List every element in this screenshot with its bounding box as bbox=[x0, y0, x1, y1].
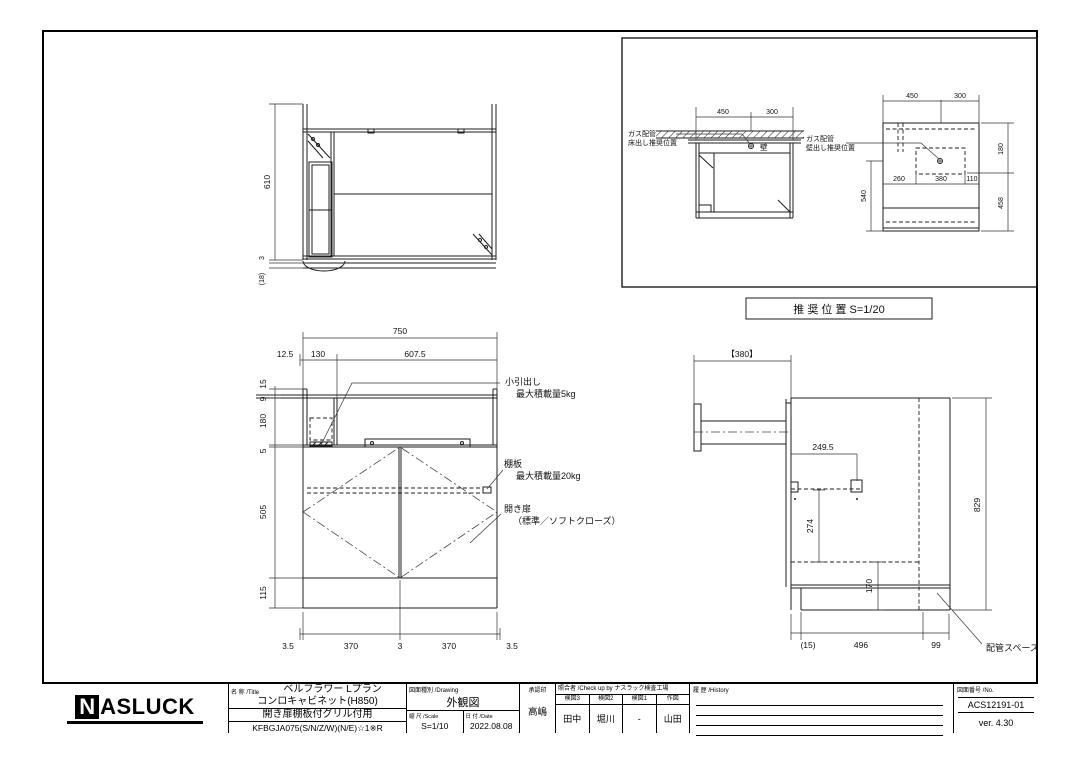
drawing-number-label: 図面番号 /No. bbox=[957, 685, 994, 694]
dim-front-9: 9 bbox=[258, 396, 268, 401]
caption-text: 推 奨 位 置 S=1/20 bbox=[793, 302, 884, 316]
title-block-check-cell: 照合者 /Check up by ナスラック検査工場 検図3 検図2 検図1 作… bbox=[555, 684, 689, 733]
title-block-drawing-cell: 図面種別 /Drawing 外観図 縮 尺 /Scale S=1/10 日 付 … bbox=[406, 684, 519, 733]
history-ruled-lines bbox=[696, 696, 943, 736]
side-view: 【380】 249.5 274 170 829 (15) 496 99 配管スペ… bbox=[694, 349, 1039, 653]
title-block-name-cell: 名 称 /Title ベルフラワー Lプラン コンロキャビネット(H850) 開… bbox=[228, 684, 406, 733]
label-shelf: 棚板 bbox=[504, 458, 522, 469]
dim-front-12-5: 12.5 bbox=[277, 349, 294, 359]
dim-side-380: 【380】 bbox=[726, 349, 757, 359]
check-col-label-1: 検図3 bbox=[556, 695, 589, 705]
label-hinged-door-type: （標準／ソフトクローズ） bbox=[513, 515, 621, 526]
date-label: 日 付 /Date bbox=[466, 712, 493, 720]
dim-front-607-5: 607.5 bbox=[404, 349, 426, 359]
dim-front-180: 180 bbox=[258, 414, 268, 428]
label-small-drawer: 小引出し bbox=[505, 376, 541, 387]
title-block-history-cell: 履 歴 /History bbox=[689, 684, 953, 733]
title-block: NASLUCK 名 称 /Title ベルフラワー Lプラン コンロキャビネット… bbox=[42, 682, 1038, 733]
dim-wall-380: 380 bbox=[935, 176, 947, 183]
dim-plan-door-thickness: (18) bbox=[259, 273, 266, 285]
gas-pipe-floor-label-1: ガス配管 bbox=[628, 129, 656, 138]
drawing-sheet: 610 3 (18) 450 300 ガス配管 床出し推奨位置 壁 ガス bbox=[0, 0, 1080, 764]
label-hinged-door: 開き扉 bbox=[504, 503, 531, 514]
dim-wall-458: 458 bbox=[998, 197, 1005, 209]
dim-front-3-5-right: 3.5 bbox=[506, 641, 518, 651]
recommended-position-caption: 推 奨 位 置 S=1/20 bbox=[746, 298, 932, 319]
dim-plan-gap: 3 bbox=[259, 256, 266, 260]
check-name-2: 堀川 bbox=[589, 705, 623, 733]
dim-side-170: 170 bbox=[864, 579, 874, 593]
product-name-line3: 開き扉棚板付グリル付用 bbox=[229, 709, 406, 722]
product-model-code: KFBGJA075(S/N/Z/W)(N/E)☆1※R bbox=[229, 722, 406, 734]
dim-wall-450: 450 bbox=[906, 93, 918, 100]
gas-pipe-wall-label-1: ガス配管 bbox=[806, 134, 834, 143]
label-shelf-load: 最大積載量20kg bbox=[516, 470, 581, 481]
check-name-3: - bbox=[622, 705, 656, 733]
dim-front-750: 750 bbox=[393, 326, 407, 336]
scale-value: S=1/10 bbox=[407, 721, 463, 731]
date-value: 2022.08.08 bbox=[464, 721, 520, 731]
logo-letters-asluck: ASLUCK bbox=[100, 694, 195, 719]
history-label: 履 歴 /History bbox=[693, 685, 729, 694]
check-col-label-2: 検図2 bbox=[589, 695, 623, 705]
dim-wall-110: 110 bbox=[966, 176, 977, 183]
dim-plan-depth: 610 bbox=[262, 175, 272, 189]
title-block-logo-cell: NASLUCK bbox=[42, 684, 228, 733]
dim-side-829: 829 bbox=[972, 498, 982, 512]
dim-side-249-5: 249.5 bbox=[812, 442, 834, 452]
plan-view: 610 3 (18) bbox=[259, 104, 496, 285]
drawing-version: ver. 4.30 bbox=[958, 718, 1034, 728]
nasluck-logo: NASLUCK bbox=[67, 694, 203, 724]
dim-wall-540: 540 bbox=[861, 190, 868, 202]
drawing-type-value: 外観図 bbox=[407, 694, 519, 710]
gas-pipe-floor-label-2: 床出し推奨位置 bbox=[628, 138, 677, 147]
dim-front-130: 130 bbox=[311, 349, 325, 359]
name-label: 名 称 /Title bbox=[229, 686, 259, 696]
dim-front-115: 115 bbox=[258, 586, 268, 600]
dim-front-3: 3 bbox=[398, 641, 403, 651]
scale-label: 縮 尺 /Scale bbox=[409, 712, 438, 720]
dim-side-496: 496 bbox=[854, 640, 868, 650]
check-col-label-4: 作図 bbox=[656, 695, 690, 705]
approval-label: 承認印 bbox=[520, 685, 555, 694]
logo-letter-n: N bbox=[75, 695, 99, 719]
dim-floor-300: 300 bbox=[766, 109, 778, 116]
recommended-position-panel: 450 300 ガス配管 床出し推奨位置 壁 ガス配管 壁出し推奨位置 450 … bbox=[622, 38, 1037, 287]
drawing-number-value: ACS12191-01 bbox=[958, 697, 1034, 713]
dim-side-15: (15) bbox=[800, 640, 815, 650]
check-name-4: 山田 bbox=[656, 705, 690, 733]
wall-label: 壁 bbox=[760, 142, 768, 152]
dim-side-274: 274 bbox=[805, 519, 815, 533]
dim-side-99: 99 bbox=[931, 640, 941, 650]
drawing-type-label: 図面種別 /Drawing bbox=[409, 685, 458, 694]
dim-wall-180: 180 bbox=[998, 143, 1005, 155]
dim-front-370-left: 370 bbox=[344, 641, 358, 651]
check-name-1: 田中 bbox=[556, 705, 589, 733]
dim-front-5: 5 bbox=[258, 448, 268, 453]
dim-front-505: 505 bbox=[258, 505, 268, 519]
dim-front-3-5-left: 3.5 bbox=[282, 641, 294, 651]
approval-name: 高嶋 bbox=[520, 704, 555, 718]
front-view: 750 12.5 130 607.5 15 9 180 5 505 115 3.… bbox=[256, 326, 621, 651]
product-name-line1: ベルフラワー Lプラン bbox=[259, 684, 406, 696]
check-col-label-3: 検図1 bbox=[622, 695, 656, 705]
label-small-drawer-load: 最大積載量5kg bbox=[516, 388, 576, 399]
product-name-line2: コンロキャビネット(H850) bbox=[229, 696, 406, 709]
gas-pipe-wall-label-2: 壁出し推奨位置 bbox=[806, 143, 855, 152]
check-header: 照合者 /Check up by ナスラック検査工場 bbox=[556, 684, 689, 694]
dim-front-370-right: 370 bbox=[442, 641, 456, 651]
dim-floor-450: 450 bbox=[717, 109, 729, 116]
dim-wall-260: 260 bbox=[893, 176, 905, 183]
title-block-approval-cell: 承認印 高嶋 bbox=[519, 684, 555, 733]
title-block-number-cell: 図面番号 /No. ACS12191-01 ver. 4.30 bbox=[953, 684, 1038, 733]
cad-drawing-canvas: 610 3 (18) 450 300 ガス配管 床出し推奨位置 壁 ガス bbox=[0, 0, 1080, 764]
dim-front-15: 15 bbox=[258, 379, 268, 389]
label-piping-space: 配管スペース bbox=[986, 642, 1039, 653]
dim-wall-300: 300 bbox=[954, 93, 966, 100]
